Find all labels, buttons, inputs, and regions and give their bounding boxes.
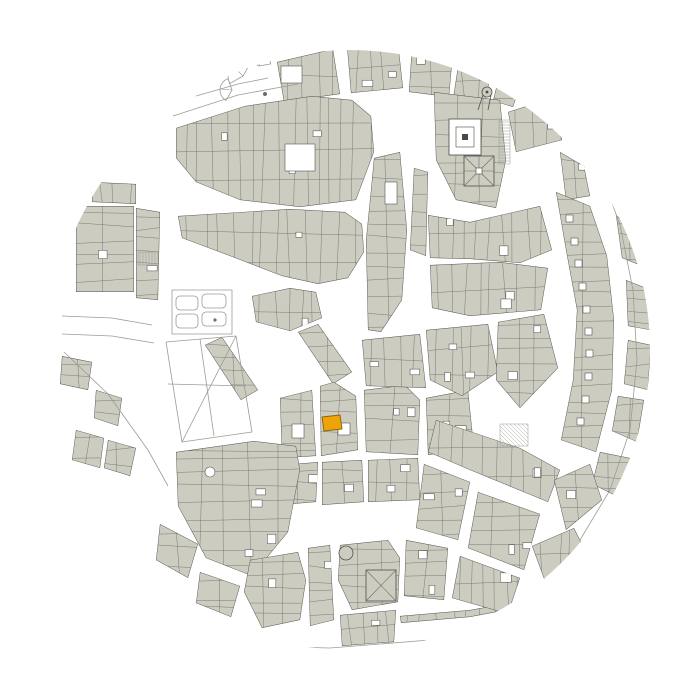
map-viewport — [0, 0, 700, 700]
church-crossing-roof — [366, 570, 396, 601]
building-block — [407, 44, 455, 99]
courtyard — [292, 424, 304, 438]
star-vault-chapel — [464, 156, 494, 186]
map-dot — [213, 318, 216, 321]
building-block — [624, 280, 653, 330]
building-block — [320, 458, 366, 507]
map-clipped-area — [0, 0, 700, 700]
building-block — [360, 332, 428, 390]
park-bed — [202, 294, 226, 308]
building-block — [402, 538, 450, 602]
courtyard — [281, 66, 302, 83]
courtyard — [285, 144, 315, 171]
building-block — [428, 260, 550, 318]
city-map-canvas — [0, 0, 700, 700]
park-bed — [176, 296, 198, 310]
courtyard — [385, 182, 397, 204]
building-block — [345, 40, 405, 95]
building-block — [74, 204, 136, 294]
cloister-courtyard — [449, 119, 481, 155]
tree-fan — [249, 54, 271, 66]
map-dot — [263, 92, 267, 96]
building-block — [362, 383, 422, 457]
highlighted-site-building — [322, 415, 342, 431]
building-block — [92, 180, 136, 206]
round-courtyard — [205, 467, 215, 477]
church-apse — [339, 546, 353, 560]
park-bed — [176, 314, 198, 328]
building-block — [366, 456, 422, 504]
